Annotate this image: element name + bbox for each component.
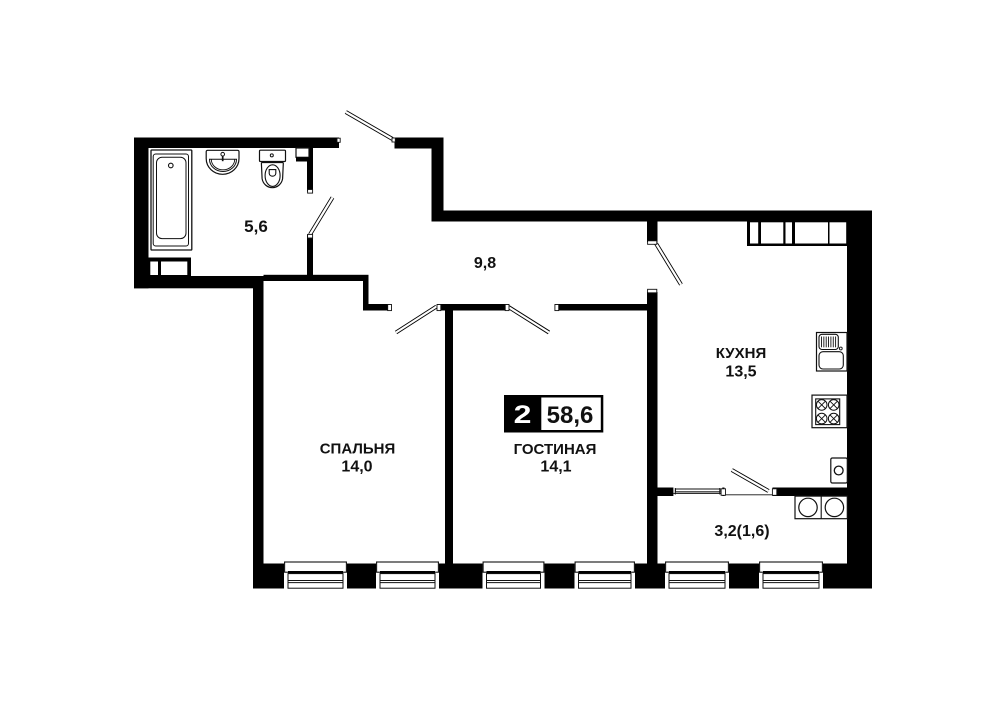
svg-text:9,8: 9,8 — [474, 255, 496, 272]
svg-text:2: 2 — [514, 401, 532, 429]
svg-text:13,5: 13,5 — [725, 364, 756, 381]
svg-text:14,1: 14,1 — [540, 459, 571, 476]
svg-text:СПАЛЬНЯ: СПАЛЬНЯ — [320, 441, 396, 458]
svg-text:3,2(1,6): 3,2(1,6) — [714, 523, 769, 540]
svg-text:КУХНЯ: КУХНЯ — [716, 345, 766, 362]
svg-text:5,6: 5,6 — [244, 217, 268, 236]
svg-text:58,6: 58,6 — [547, 402, 594, 429]
svg-text:14,0: 14,0 — [341, 459, 372, 476]
svg-text:ГОСТИНАЯ: ГОСТИНАЯ — [514, 441, 597, 458]
